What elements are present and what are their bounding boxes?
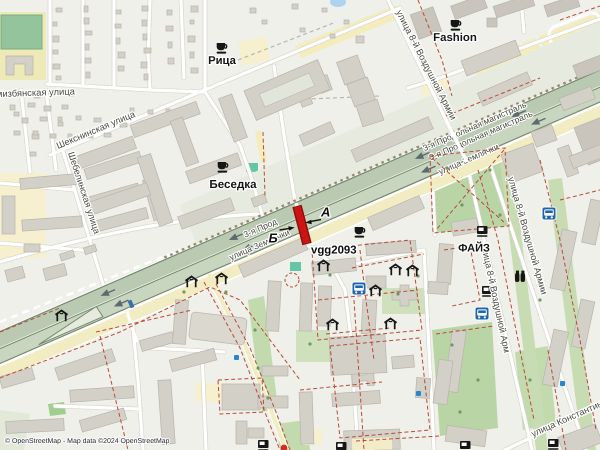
svg-text:ФАЙЗ: ФАЙЗ: [458, 242, 490, 255]
svg-text:© OpenStreetMap - Map data ©20: © OpenStreetMap - Map data ©2024 OpenStr…: [5, 437, 170, 445]
svg-text:Беседка: Беседка: [209, 178, 257, 191]
svg-text:А: А: [320, 205, 330, 220]
svg-text:vgg2093: vgg2093: [311, 245, 357, 257]
svg-text:Б: Б: [269, 231, 278, 246]
svg-text:Fashion: Fashion: [433, 32, 477, 44]
svg-text:Рица: Рица: [208, 55, 237, 67]
